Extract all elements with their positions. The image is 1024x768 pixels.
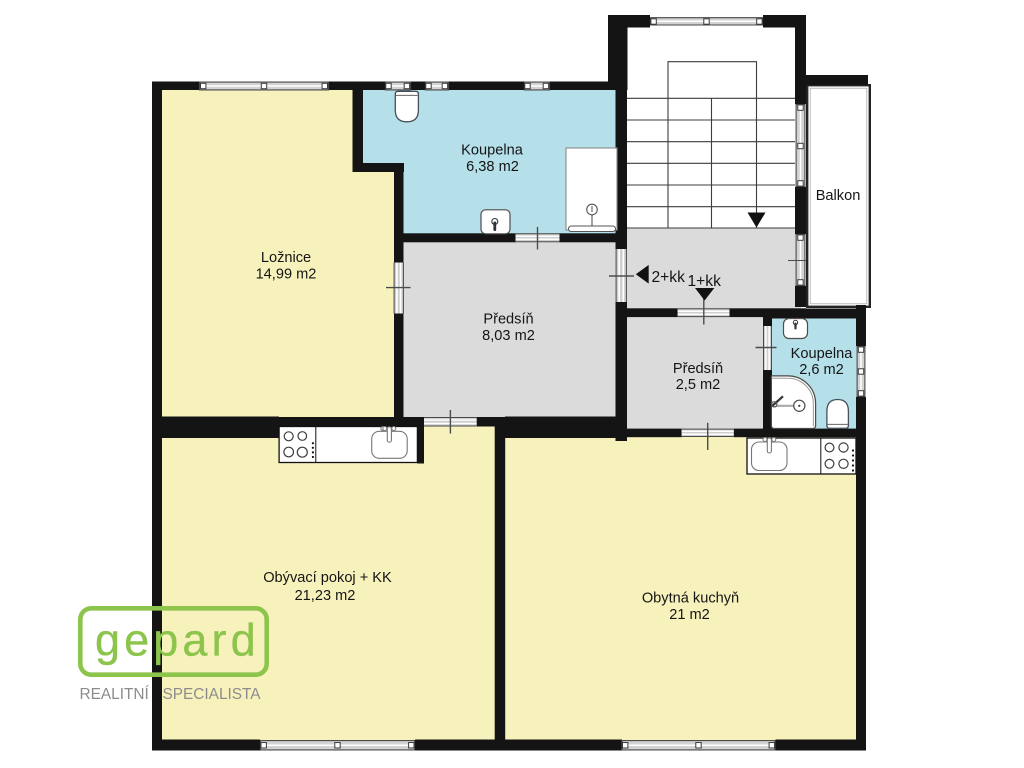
svg-text:Předsíň: Předsíň — [673, 361, 723, 377]
svg-text:Koupelna: Koupelna — [791, 346, 854, 362]
svg-text:SPECIALISTA: SPECIALISTA — [163, 686, 262, 703]
svg-text:Obytná kuchyň: Obytná kuchyň — [642, 591, 739, 607]
svg-text:14,99 m2: 14,99 m2 — [256, 266, 317, 282]
svg-text:Předsíň: Předsíň — [483, 311, 533, 327]
svg-text:21 m2: 21 m2 — [669, 607, 710, 623]
svg-text:6,38 m2: 6,38 m2 — [466, 159, 519, 175]
svg-text:gepard: gepard — [95, 615, 260, 666]
svg-text:2,6 m2: 2,6 m2 — [799, 362, 844, 378]
svg-text:Obývací pokoj + KK: Obývací pokoj + KK — [263, 570, 392, 586]
svg-text:Balkon: Balkon — [816, 188, 861, 204]
svg-text:Ložnice: Ložnice — [261, 250, 311, 266]
svg-text:1+kk: 1+kk — [688, 273, 722, 290]
svg-text:Koupelna: Koupelna — [461, 143, 524, 159]
svg-text:8,03 m2: 8,03 m2 — [482, 328, 535, 344]
svg-text:21,23 m2: 21,23 m2 — [295, 588, 356, 604]
svg-text:2+kk: 2+kk — [652, 269, 686, 286]
svg-text:REALITNÍ: REALITNÍ — [80, 686, 150, 703]
svg-text:2,5 m2: 2,5 m2 — [676, 377, 721, 393]
